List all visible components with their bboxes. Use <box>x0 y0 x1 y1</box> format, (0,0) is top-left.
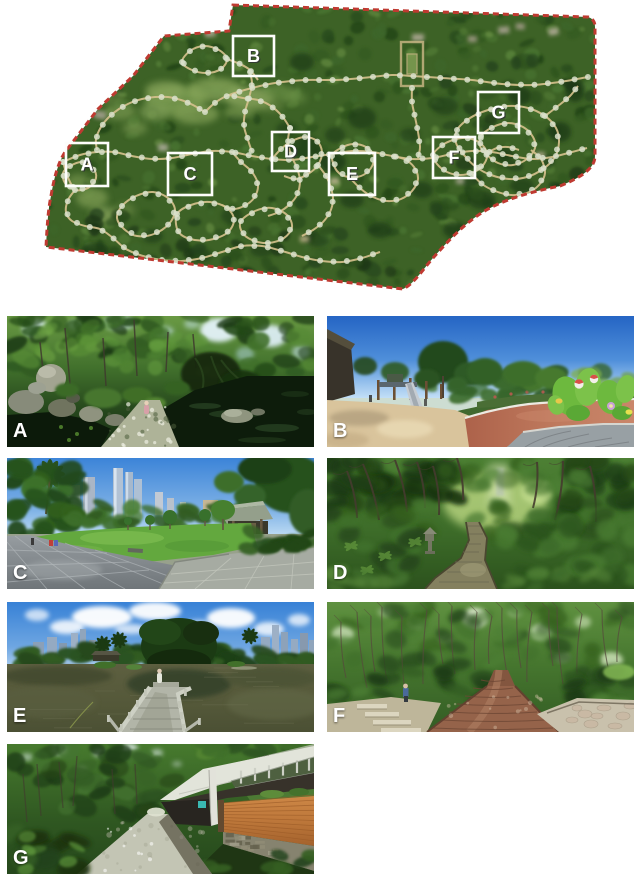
svg-text:A: A <box>81 155 94 175</box>
svg-text:G: G <box>491 103 505 123</box>
svg-text:C: C <box>184 164 197 184</box>
svg-text:B: B <box>247 46 260 66</box>
svg-text:D: D <box>284 142 297 162</box>
svg-text:E: E <box>346 164 358 184</box>
svg-text:F: F <box>449 148 460 168</box>
